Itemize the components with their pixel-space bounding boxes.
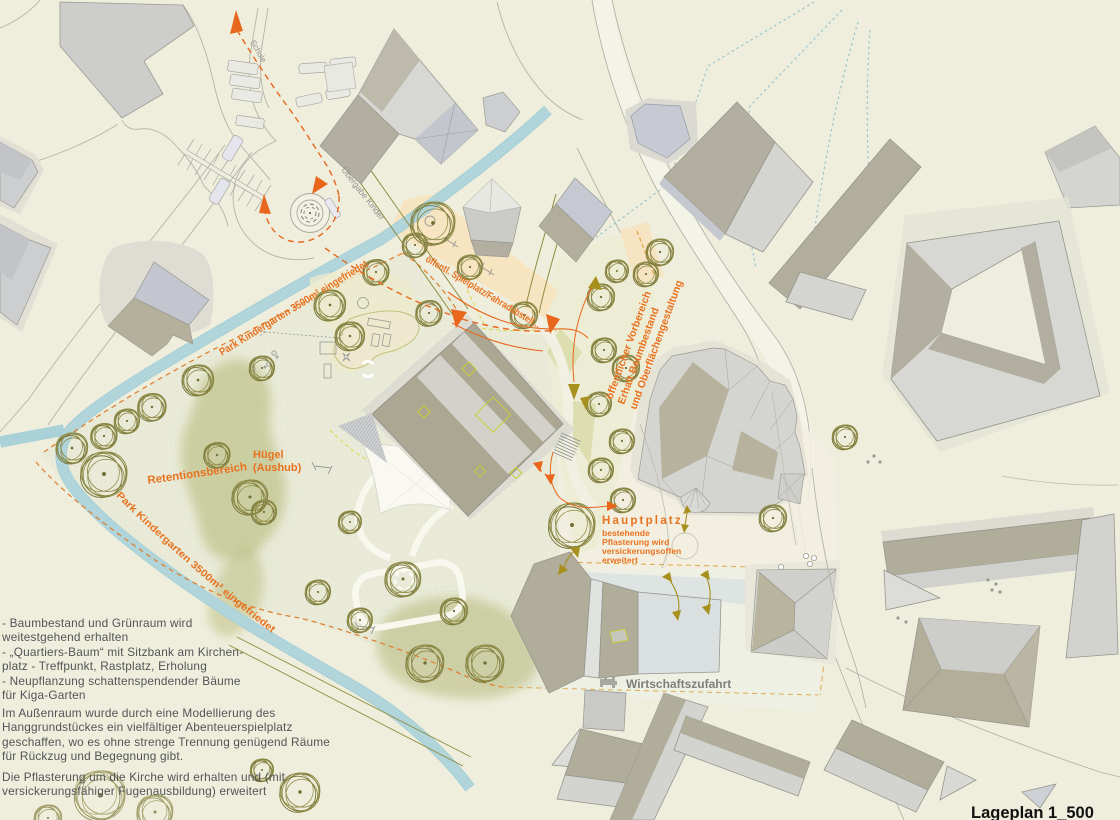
svg-text:Wirtschaftszufahrt: Wirtschaftszufahrt	[626, 677, 731, 691]
svg-text:Hanggrundstückes ein vielfälti: Hanggrundstückes ein vielfältiger Abente…	[2, 720, 293, 734]
svg-text:- Baumbestand und Grünraum wir: - Baumbestand und Grünraum wird	[2, 616, 192, 630]
svg-text:geschaffen, wo es ohne strenge: geschaffen, wo es ohne strenge Trennung …	[2, 735, 330, 749]
svg-text:erweitert: erweitert	[602, 555, 638, 565]
svg-text:Die Pflasterung um die Kirche: Die Pflasterung um die Kirche wird erhal…	[2, 770, 286, 784]
svg-text:Hauptplatz: Hauptplatz	[602, 515, 683, 527]
svg-text:Im Außenraum wurde durch eine: Im Außenraum wurde durch eine Modellieru…	[2, 706, 275, 720]
svg-text:(Aushub): (Aushub)	[253, 462, 302, 474]
svg-text:platz - Treffpunkt, Rastplatz,: platz - Treffpunkt, Rastplatz, Erholung	[2, 659, 207, 673]
svg-text:Hügel: Hügel	[253, 449, 284, 461]
svg-text:für Rückzug und Begegnung gibt: für Rückzug und Begegnung gibt.	[2, 749, 183, 763]
svg-text:- „Quartiers-Baum“ mit Sitzban: - „Quartiers-Baum“ mit Sitzbank am Kirch…	[2, 645, 243, 659]
svg-text:Lageplan 1_500: Lageplan 1_500	[971, 804, 1094, 820]
svg-text:- Neupflanzung schattenspenden: - Neupflanzung schattenspendender Bäume	[2, 674, 241, 688]
svg-text:weitestgehend erhalten: weitestgehend erhalten	[1, 630, 128, 644]
svg-text:versickerungsfähiger Fugenausb: versickerungsfähiger Fugenausbildung) er…	[2, 784, 267, 798]
svg-text:für Kiga-Garten: für Kiga-Garten	[2, 688, 86, 702]
